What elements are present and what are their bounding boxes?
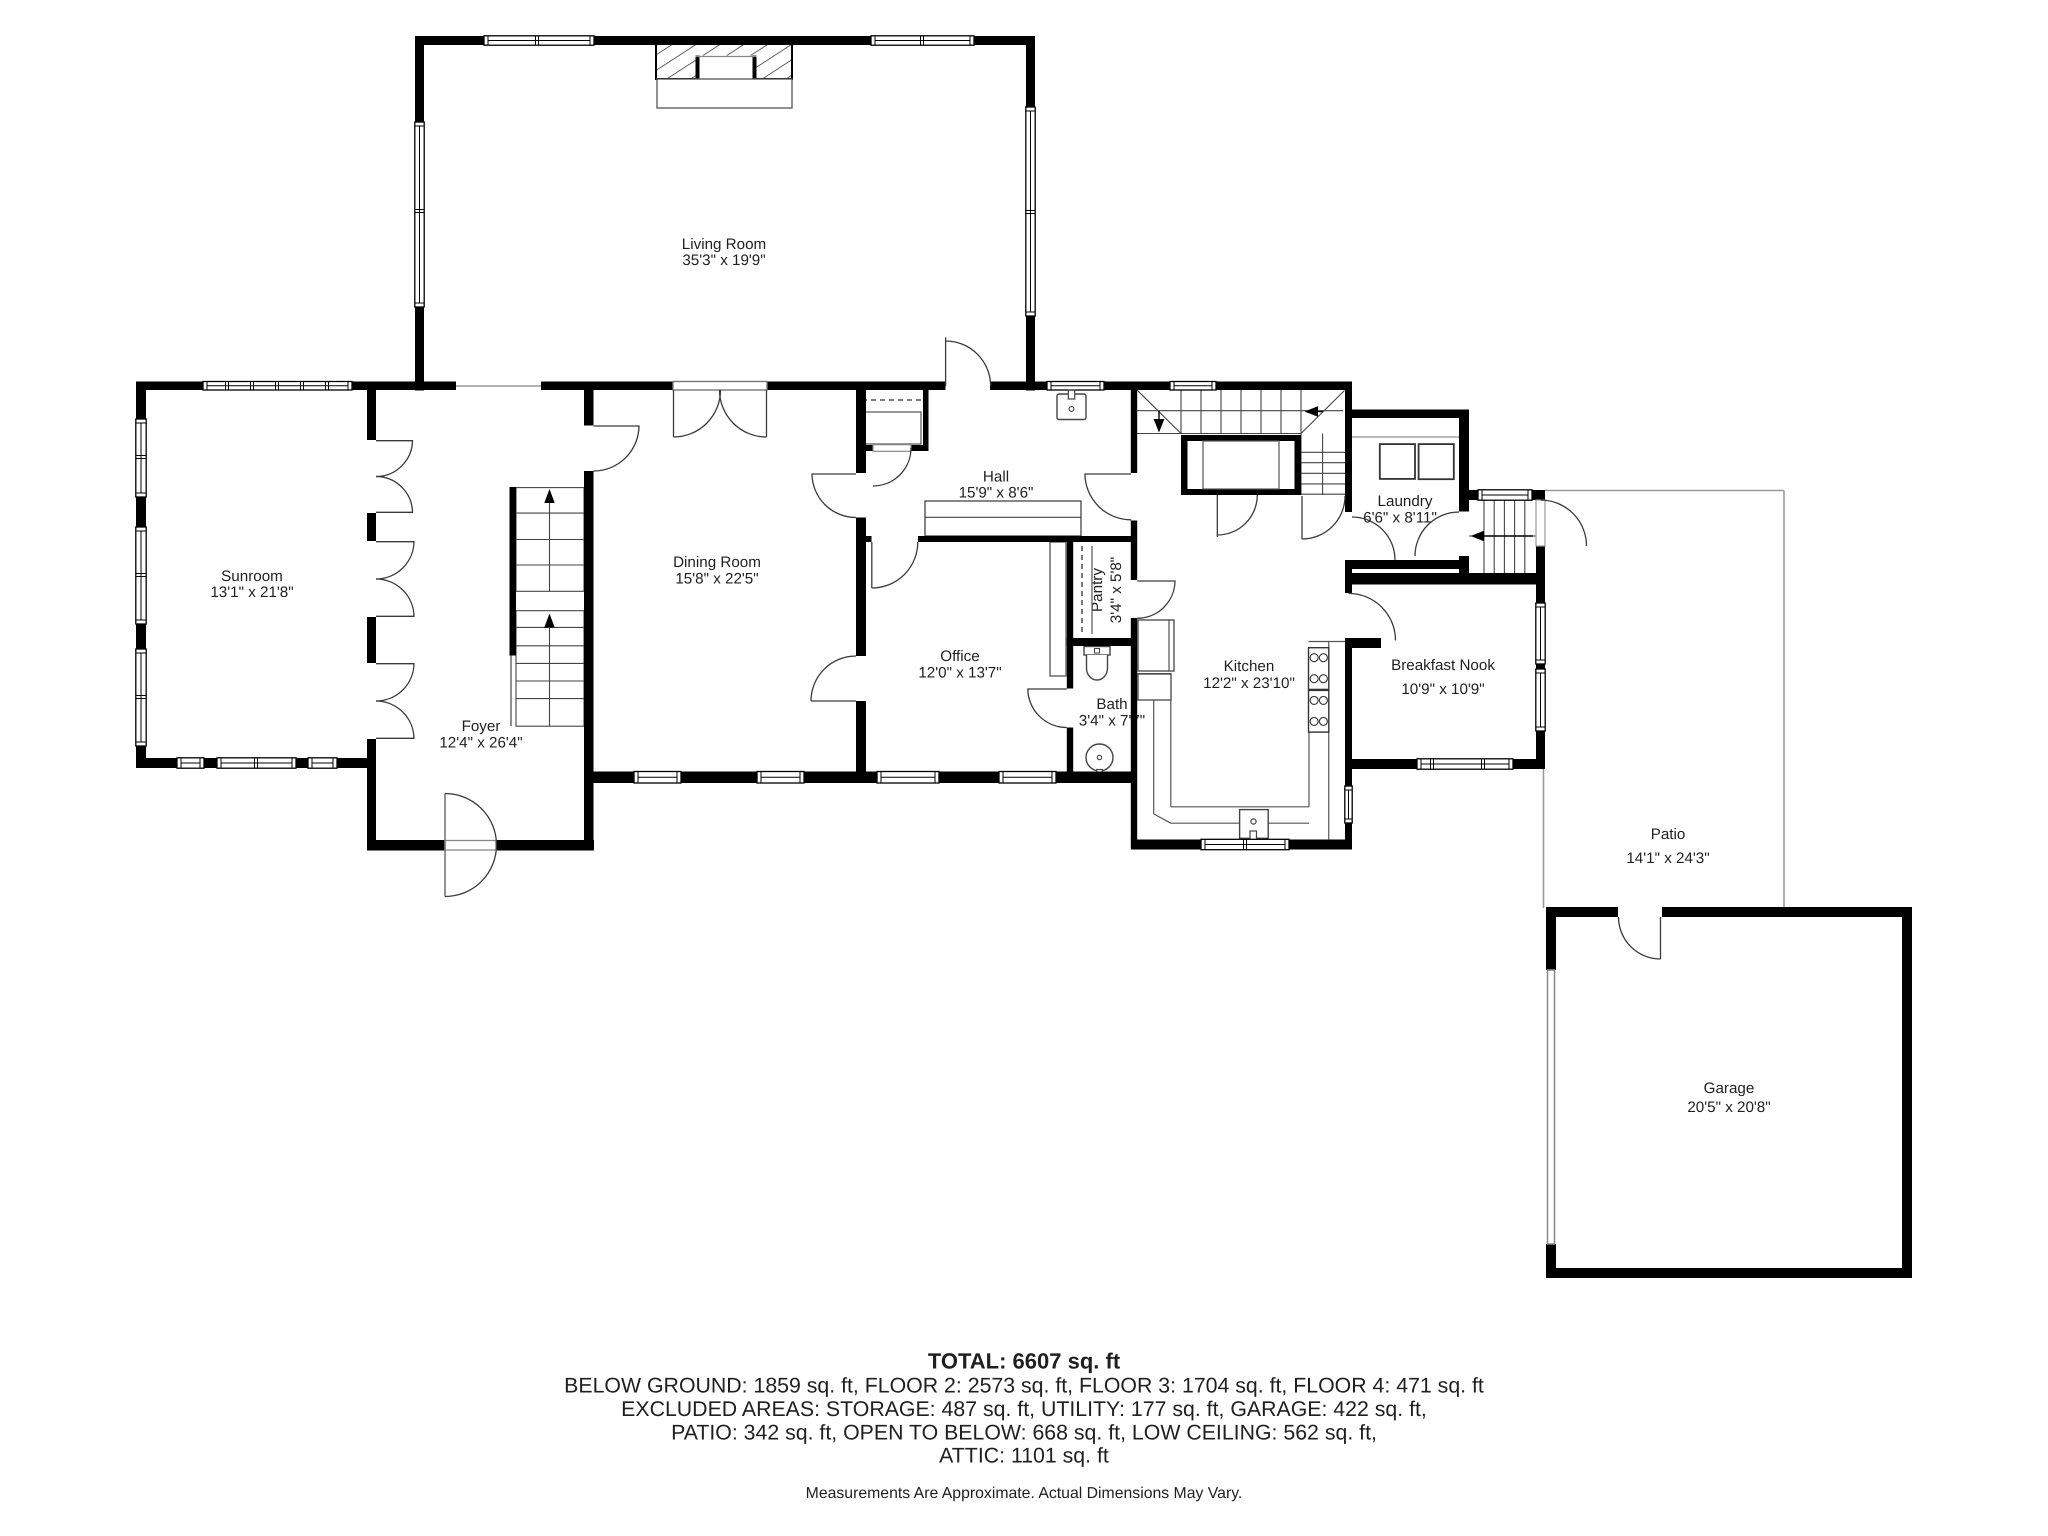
svg-text:Sunroom: Sunroom xyxy=(221,568,283,585)
svg-text:Living Room: Living Room xyxy=(682,236,766,253)
svg-text:13'1" x 21'8": 13'1" x 21'8" xyxy=(210,584,293,601)
svg-text:15'8" x 22'5": 15'8" x 22'5" xyxy=(675,570,758,587)
svg-text:3'4" x 5'8": 3'4" x 5'8" xyxy=(1108,557,1125,623)
svg-text:Bath: Bath xyxy=(1096,696,1127,713)
svg-text:Measurements Are Approximate.: Measurements Are Approximate. Actual Dim… xyxy=(806,1485,1243,1502)
svg-text:Laundry: Laundry xyxy=(1378,493,1433,510)
svg-text:14'1" x 24'3": 14'1" x 24'3" xyxy=(1626,850,1709,867)
svg-text:BELOW GROUND: 1859 sq. ft, FLO: BELOW GROUND: 1859 sq. ft, FLOOR 2: 2573… xyxy=(564,1374,1484,1398)
svg-text:35'3" x 19'9": 35'3" x 19'9" xyxy=(682,252,765,269)
svg-text:EXCLUDED AREAS: STORAGE: 487 s: EXCLUDED AREAS: STORAGE: 487 sq. ft, UTI… xyxy=(621,1397,1427,1421)
svg-text:Patio: Patio xyxy=(1651,826,1686,843)
svg-text:12'4" x 26'4": 12'4" x 26'4" xyxy=(439,734,522,751)
svg-text:Kitchen: Kitchen xyxy=(1224,658,1275,675)
svg-text:Garage: Garage xyxy=(1704,1080,1755,1097)
svg-text:Dining Room: Dining Room xyxy=(673,554,761,571)
svg-text:12'0" x 13'7": 12'0" x 13'7" xyxy=(918,664,1001,681)
svg-text:15'9" x 8'6": 15'9" x 8'6" xyxy=(959,485,1034,502)
svg-text:Foyer: Foyer xyxy=(462,718,501,735)
svg-text:PATIO: 342 sq. ft, OPEN TO BEL: PATIO: 342 sq. ft, OPEN TO BELOW: 668 sq… xyxy=(671,1421,1377,1445)
svg-text:6'6" x 8'11": 6'6" x 8'11" xyxy=(1363,510,1437,527)
svg-text:ATTIC: 1101 sq. ft: ATTIC: 1101 sq. ft xyxy=(939,1443,1109,1467)
svg-text:Hall: Hall xyxy=(983,469,1009,486)
svg-text:Office: Office xyxy=(940,648,979,665)
svg-text:20'5" x 20'8": 20'5" x 20'8" xyxy=(1687,1099,1770,1116)
svg-text:10'9" x 10'9": 10'9" x 10'9" xyxy=(1401,681,1484,698)
svg-text:12'2" x 23'10": 12'2" x 23'10" xyxy=(1203,675,1295,692)
svg-text:TOTAL: 6607 sq. ft: TOTAL: 6607 sq. ft xyxy=(928,1349,1121,1374)
svg-text:Breakfast Nook: Breakfast Nook xyxy=(1391,657,1495,674)
